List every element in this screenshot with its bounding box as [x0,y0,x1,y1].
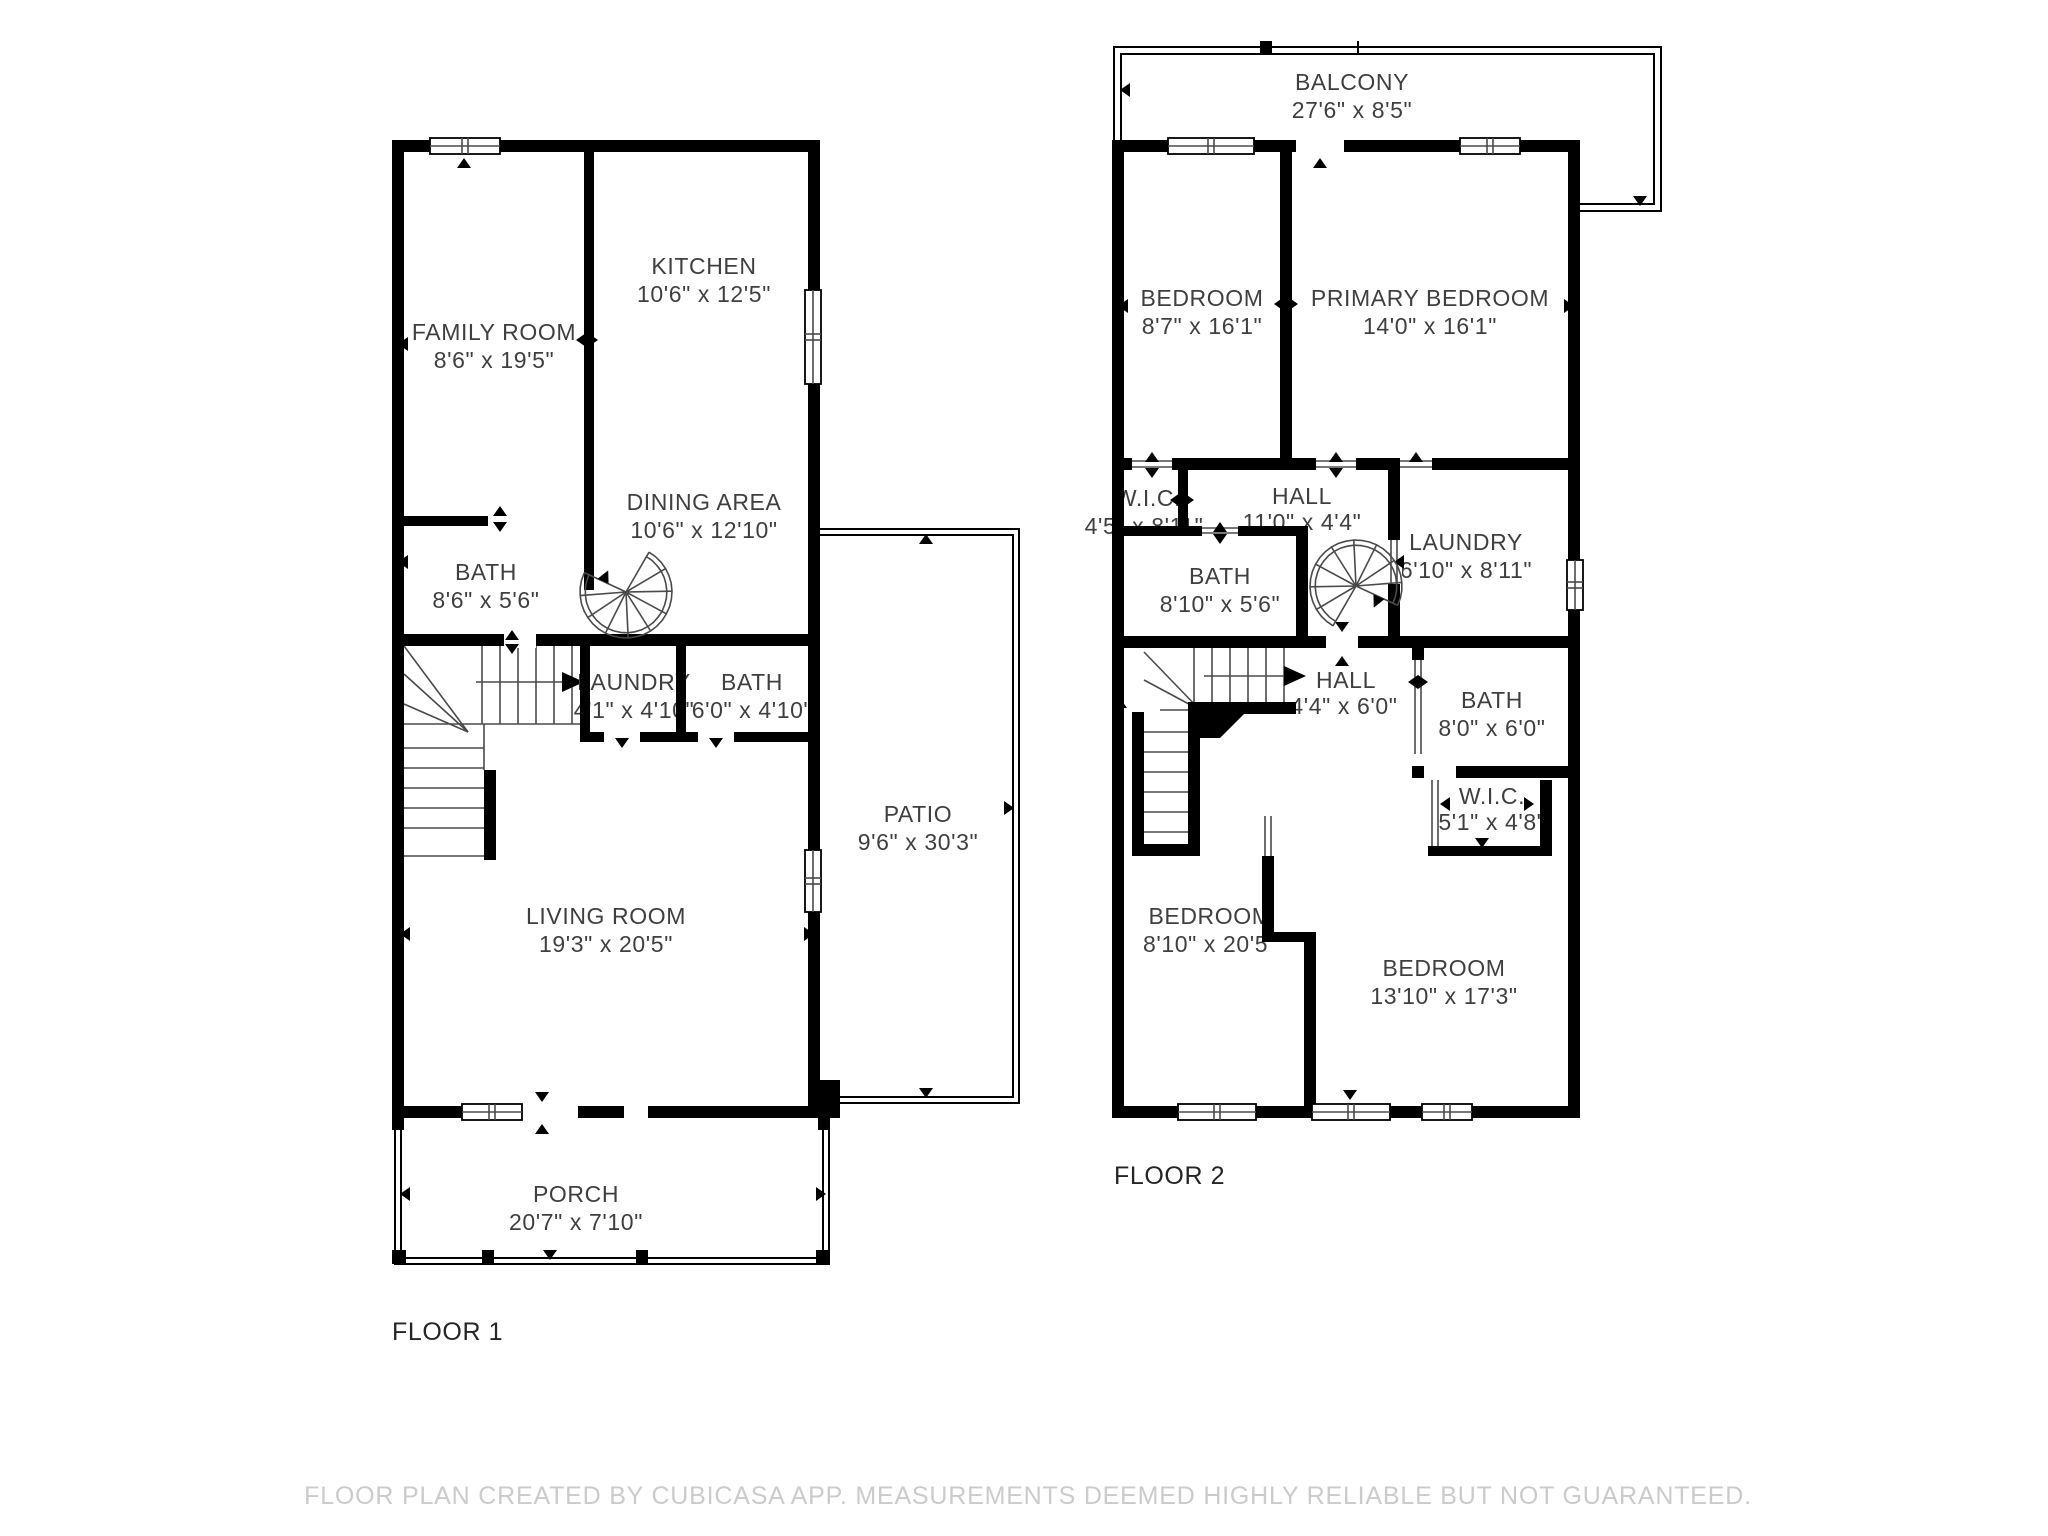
svg-text:14'0" x 16'1": 14'0" x 16'1" [1363,313,1497,339]
svg-text:LIVING ROOM: LIVING ROOM [526,903,686,929]
svg-text:10'6" x 12'5": 10'6" x 12'5" [637,281,771,307]
svg-text:BATH: BATH [1189,563,1251,589]
svg-text:HALL: HALL [1272,483,1332,509]
svg-text:5'1" x 4'8": 5'1" x 4'8" [1438,809,1545,835]
room-label-living-room: LIVING ROOM 19'3" x 20'5" [526,903,686,957]
room-label-bath-1: BATH 8'6" x 5'6" [432,559,539,613]
room-label-bedroom-1: BEDROOM 8'7" x 16'1" [1140,285,1263,339]
svg-text:13'10" x 17'3": 13'10" x 17'3" [1370,983,1517,1009]
svg-text:FAMILY ROOM: FAMILY ROOM [412,319,576,345]
room-label-bedroom-4: BEDROOM 13'10" x 17'3" [1370,955,1517,1009]
svg-text:W.I.C.: W.I.C. [1115,485,1181,511]
svg-text:8'10" x 20'5": 8'10" x 20'5" [1143,931,1277,957]
svg-text:27'6" x 8'5": 27'6" x 8'5" [1292,97,1413,123]
svg-text:HALL: HALL [1316,667,1376,693]
floor1-walls [392,140,840,1118]
svg-text:BEDROOM: BEDROOM [1140,285,1263,311]
room-label-bath-3: BATH 8'10" x 5'6" [1160,563,1281,617]
svg-text:LAUNDRY: LAUNDRY [577,669,691,695]
svg-text:BALCONY: BALCONY [1295,69,1409,95]
room-label-patio: PATIO 9'6" x 30'3" [858,801,979,855]
floor1-tag: FLOOR 1 [392,1318,503,1346]
room-label-porch: PORCH 20'7" x 7'10" [509,1181,643,1235]
room-label-family-room: FAMILY ROOM 8'6" x 19'5" [412,319,576,373]
room-label-kitchen: KITCHEN 10'6" x 12'5" [637,253,771,307]
svg-text:6'10" x 8'11": 6'10" x 8'11" [1400,557,1532,583]
svg-text:9'6" x 30'3": 9'6" x 30'3" [858,829,979,855]
svg-text:PRIMARY BEDROOM: PRIMARY BEDROOM [1311,285,1549,311]
svg-text:DINING AREA: DINING AREA [627,489,782,515]
svg-text:4'4" x 6'0": 4'4" x 6'0" [1290,693,1397,719]
svg-text:19'3" x 20'5": 19'3" x 20'5" [539,931,673,957]
svg-text:BEDROOM: BEDROOM [1382,955,1505,981]
svg-text:KITCHEN: KITCHEN [651,253,756,279]
svg-text:BATH: BATH [721,669,783,695]
room-label-hall-2: HALL 4'4" x 6'0" [1290,667,1397,719]
floor2-room-labels: BALCONY 27'6" x 8'5" BEDROOM 8'7" x 16'1… [1085,69,1550,1009]
svg-text:8'6" x 5'6": 8'6" x 5'6" [432,587,539,613]
svg-text:BATH: BATH [455,559,517,585]
svg-text:LAUNDRY: LAUNDRY [1409,529,1523,555]
room-label-balcony: BALCONY 27'6" x 8'5" [1292,69,1413,123]
floor2-staircase [1144,648,1306,832]
svg-text:8'7" x 16'1": 8'7" x 16'1" [1142,313,1263,339]
room-label-bedroom-3: BEDROOM 8'10" x 20'5" [1143,903,1277,957]
svg-text:PATIO: PATIO [884,801,953,827]
floor2-tag: FLOOR 2 [1114,1162,1225,1190]
room-label-primary-bedroom: PRIMARY BEDROOM 14'0" x 16'1" [1311,285,1549,339]
svg-text:6'0" x 4'10": 6'0" x 4'10" [692,697,813,723]
svg-text:8'6" x 19'5": 8'6" x 19'5" [434,347,555,373]
room-label-laundry-2: LAUNDRY 6'10" x 8'11" [1400,529,1532,583]
svg-text:BEDROOM: BEDROOM [1148,903,1271,929]
svg-text:BATH: BATH [1461,687,1523,713]
room-label-bath-2: BATH 6'0" x 4'10" [692,669,813,723]
room-label-wic-2: W.I.C. 5'1" x 4'8" [1438,783,1545,835]
svg-text:W.I.C.: W.I.C. [1459,783,1525,809]
disclaimer-text: FLOOR PLAN CREATED BY CUBICASA APP. MEAS… [304,1482,1752,1510]
svg-text:8'10" x 5'6": 8'10" x 5'6" [1160,591,1281,617]
floor-plan-page: KITCHEN 10'6" x 12'5" FAMILY ROOM 8'6" x… [0,0,2048,1536]
spiral-staircases [580,540,1402,638]
svg-text:10'6" x 12'10": 10'6" x 12'10" [630,517,777,543]
room-label-bath-4: BATH 8'0" x 6'0" [1438,687,1545,741]
svg-text:PORCH: PORCH [533,1181,619,1207]
svg-text:8'0" x 6'0": 8'0" x 6'0" [1438,715,1545,741]
room-label-dining-area: DINING AREA 10'6" x 12'10" [627,489,782,543]
floor-plan-canvas: KITCHEN 10'6" x 12'5" FAMILY ROOM 8'6" x… [0,0,2048,1536]
svg-text:20'7" x 7'10": 20'7" x 7'10" [509,1209,643,1235]
floor1-room-labels: KITCHEN 10'6" x 12'5" FAMILY ROOM 8'6" x… [412,253,978,1235]
